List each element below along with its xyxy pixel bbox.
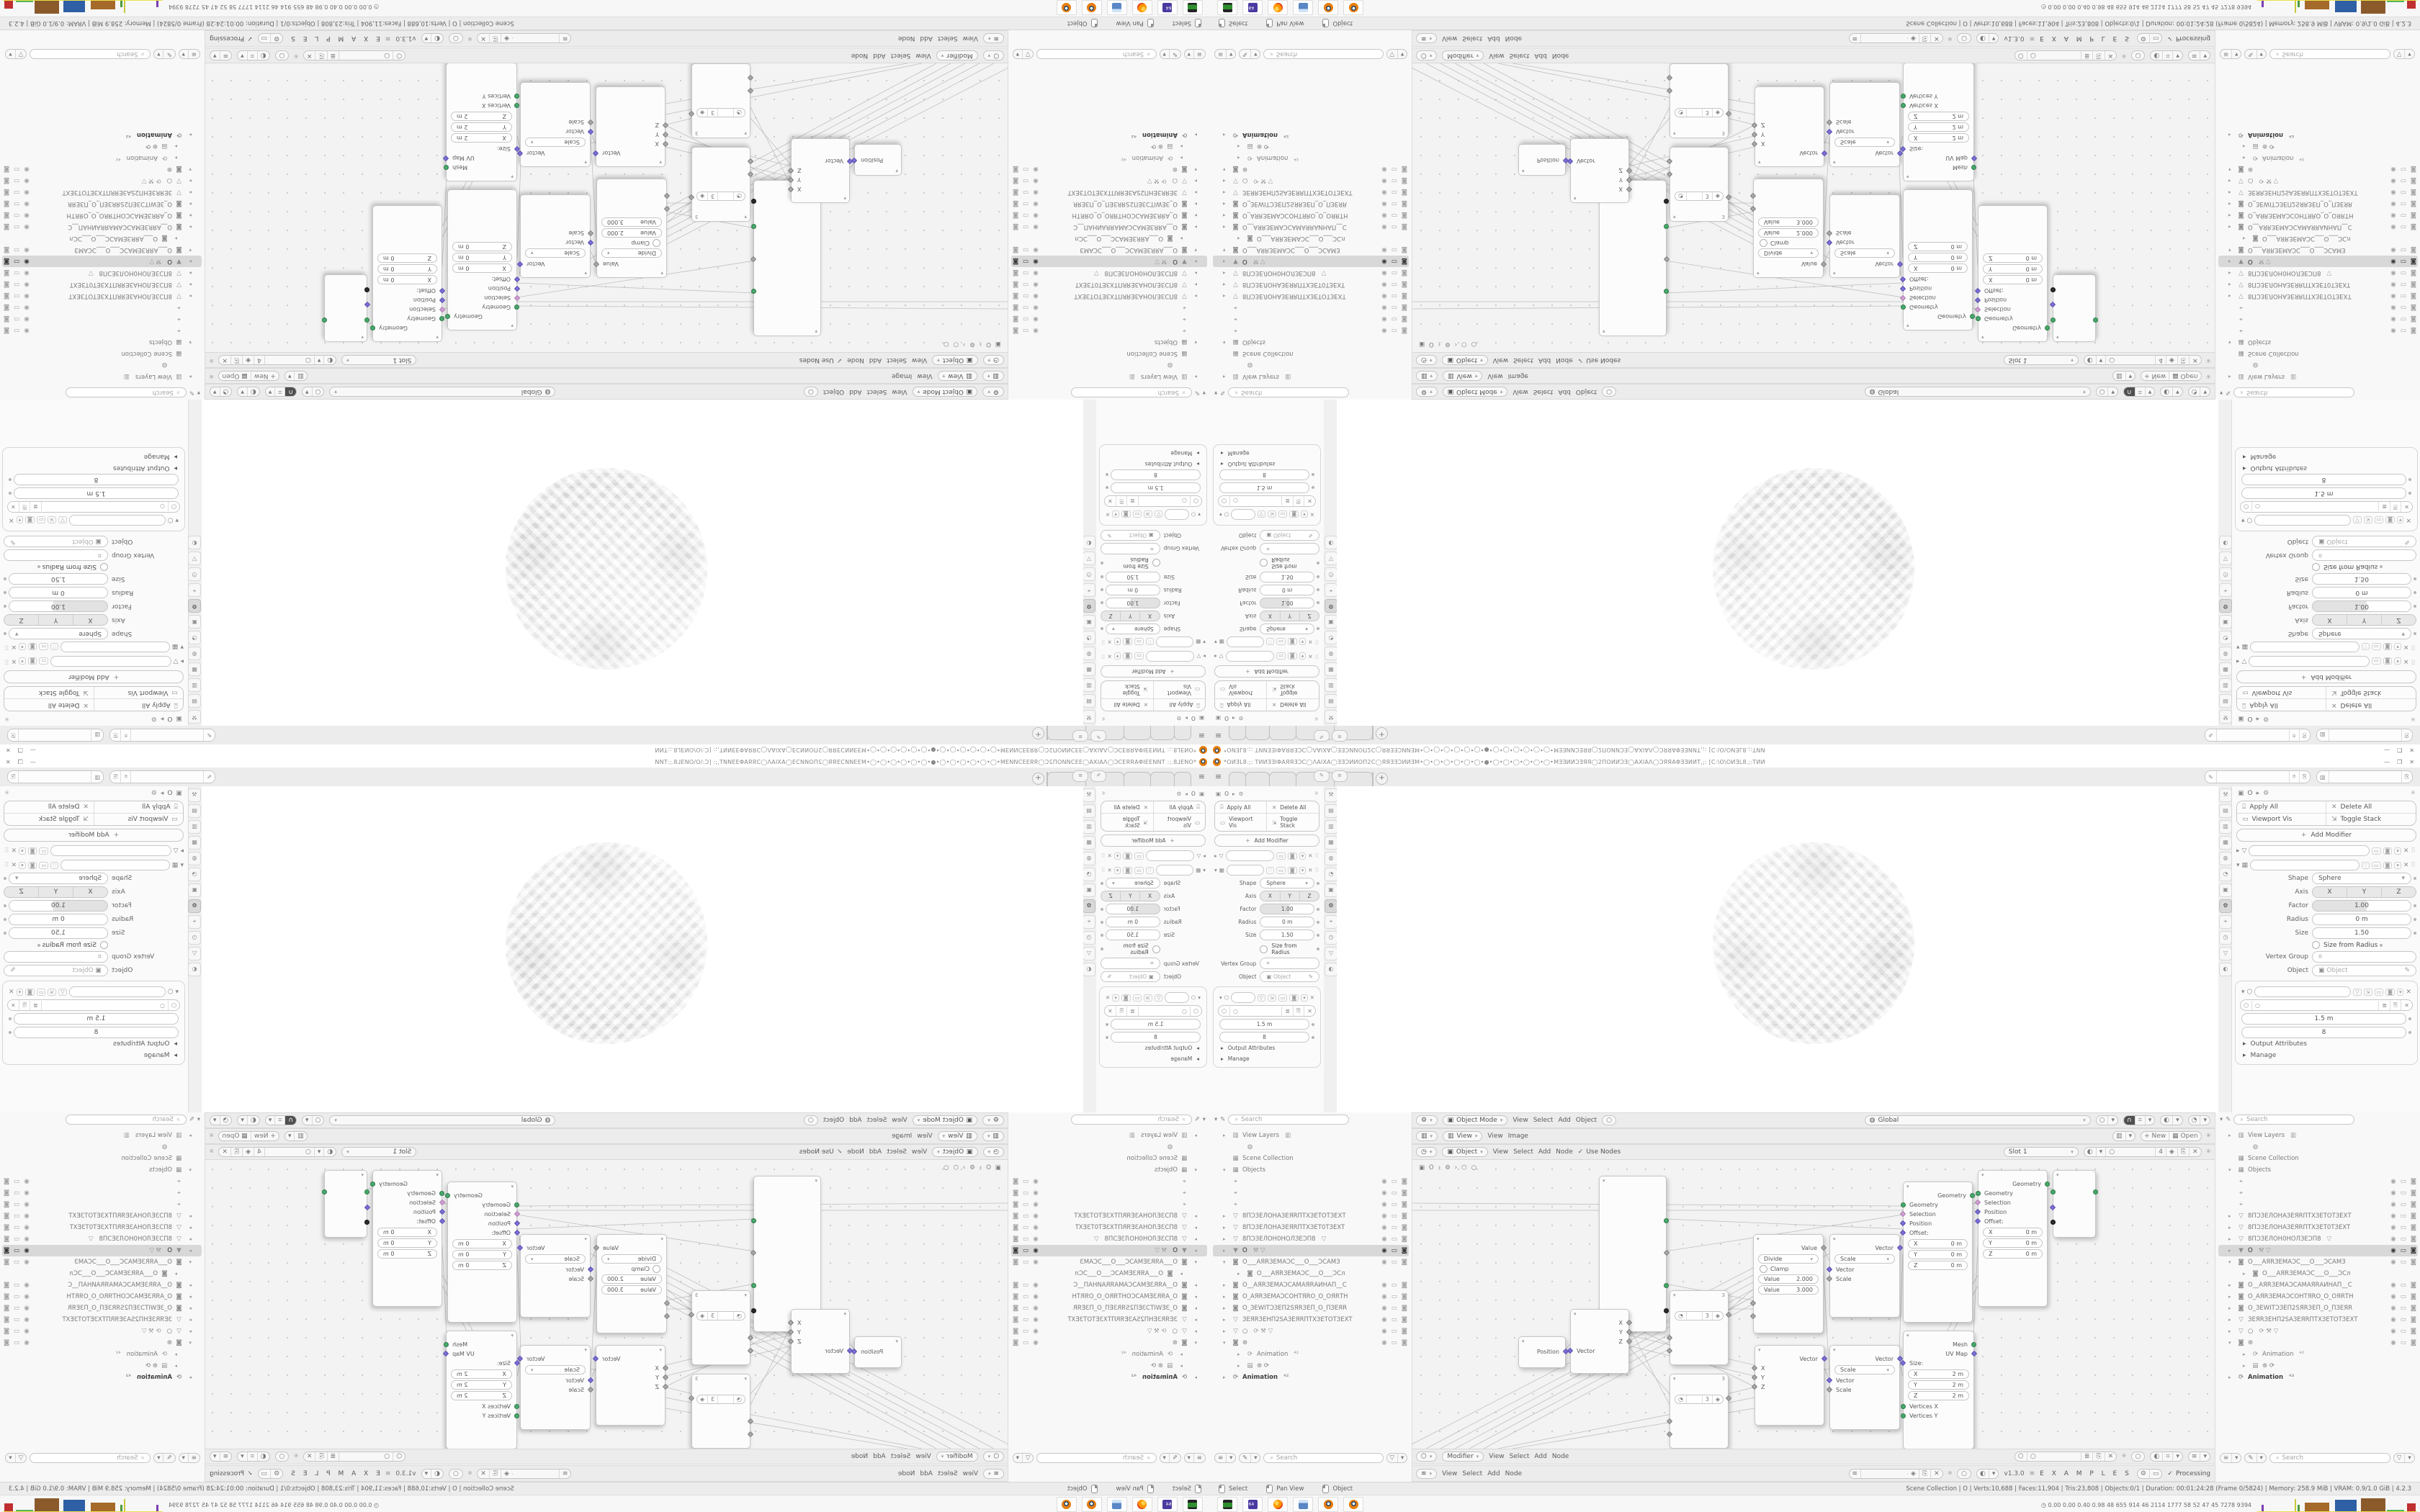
eye-toggle-icon[interactable]: ◉ — [24, 281, 29, 288]
workspace-tab[interactable] — [1124, 772, 1151, 786]
eye-toggle-icon[interactable]: ◉ — [24, 304, 29, 311]
eye-toggle-icon[interactable]: ◉ — [2390, 258, 2396, 265]
chevron-down-icon[interactable]: ▾ — [314, 356, 324, 364]
outliner-item[interactable]: ▸ ◙ O_ЗЕWІТƆЗЕП2SЯRЗЕП_О_ПЗЕЯR ◉ ▭ ◙ — [1213, 1302, 1409, 1314]
tree-selector[interactable]: ≋ ◈ ⎘ ✕ — [477, 34, 571, 44]
expand-arrow-icon[interactable]: ▸ — [1177, 155, 1183, 161]
mouse-mode-group[interactable]: ◔ ▾ — [210, 1115, 232, 1125]
screen-toggle-icon[interactable]: ▭ — [14, 1259, 19, 1266]
copy-icon[interactable]: ⎘ — [2093, 1452, 2105, 1461]
modifier-header-collapsed[interactable]: ▸ ▽ ▭ ◙ ▾ ✕ ⠿ — [4, 845, 184, 856]
camera-toggle-icon[interactable]: ◙ — [2411, 269, 2416, 276]
axis-toggle[interactable]: X Y Z — [1101, 891, 1160, 901]
node-group-name[interactable]: ○ — [1138, 1007, 1190, 1016]
object-field[interactable]: ▣ Object✎ — [4, 536, 108, 547]
output-attributes-panel[interactable]: ▸ Output Attributes — [2237, 1038, 2416, 1050]
screen-toggle-icon[interactable]: ▭ — [14, 1282, 19, 1289]
copy-icon[interactable]: ⎘ — [2390, 502, 2401, 512]
screen-toggle-icon[interactable]: ▭ — [14, 1224, 19, 1231]
image-selector[interactable]: ▥ ⎘ — [7, 770, 104, 783]
mesh-toggle-icon[interactable]: ▽ — [1266, 867, 1274, 874]
modifier-name-field[interactable] — [69, 515, 166, 526]
eye-toggle-icon[interactable]: ◉ — [24, 1236, 29, 1243]
outliner-item[interactable]: ▸ ◙ O_АЯRЗЕМАƆСОНТЯRО_О_ОЯRТН ◉ ▭ ◙ — [1213, 210, 1409, 221]
camera-toggle-icon[interactable]: ◙ — [4, 292, 9, 300]
nodes-count-field[interactable]: 8 — [14, 474, 179, 485]
outliner-item[interactable]: ▦ Scene Collection — [1011, 1153, 1207, 1164]
size-field[interactable]: 1.50 — [2312, 927, 2411, 939]
item-label[interactable]: Animation — [127, 1351, 158, 1358]
screen-toggle-icon[interactable]: ▭ — [2401, 200, 2406, 207]
snap-circle-icon[interactable]: ○ — [449, 34, 463, 44]
animate-dot[interactable] — [37, 566, 40, 569]
shield-icon[interactable]: ◈ — [1713, 1395, 1723, 1403]
properties-tab-icon[interactable]: ◍ — [1083, 852, 1095, 865]
delete-all-button[interactable]: ✕Delete All — [4, 698, 94, 711]
outliner-item[interactable]: ▾ ▦ Objects — [2218, 336, 2418, 348]
user-count[interactable]: 4 — [254, 1148, 264, 1156]
node-separate-xyz[interactable]: ▾ X Y Z Vector — [1570, 138, 1629, 203]
outliner-item[interactable]: ▸ ▽ 8ПƆЗЕЛОНАЗЕЯRПТХЗЕТОТЗЕХТ ◉ ▭ ◙ — [1213, 1210, 1409, 1222]
monitor-toggle-icon[interactable]: ▭ — [2372, 644, 2381, 651]
proportional-icon[interactable]: ◐ — [2161, 1116, 2173, 1125]
eye-toggle-icon[interactable]: ◉ — [2390, 177, 2396, 184]
outliner-item[interactable]: ▸ ▤ ⊛ ⟳ — [2218, 140, 2418, 152]
outliner-item[interactable]: ▾ ▦ Objects — [2, 1164, 202, 1176]
node-object-info[interactable]: ▾ 3 ◔ 3 ◈ — [1670, 63, 1729, 138]
outliner-item[interactable]: ▾ ◙ O___АЯRЗЕМАƆС___О___ƆСАМЗ ◉ ▭ ◙ — [1011, 244, 1207, 256]
open-image-button[interactable]: ▦ Open — [2169, 372, 2200, 380]
brush-icon[interactable]: ✎ — [163, 1454, 174, 1462]
radius-field[interactable]: 0 m — [1260, 585, 1314, 595]
geometry-output-socket[interactable] — [1664, 1283, 1669, 1288]
workspace-tab[interactable] — [1269, 772, 1296, 786]
properties-tab-icon[interactable]: ▽ — [1325, 552, 1337, 565]
copy-icon[interactable]: ⎘ — [2402, 771, 2412, 783]
expand-arrow-icon[interactable]: ▸ — [1223, 293, 1229, 299]
copy-icon[interactable]: ⎘ — [110, 771, 120, 783]
eye-toggle-icon[interactable]: ◉ — [1381, 269, 1386, 276]
dna-icon[interactable]: ≋ — [1850, 35, 1862, 43]
outliner-search[interactable]: ⌕ Search — [2233, 1115, 2354, 1125]
shape-dropdown[interactable]: Sphere▾ — [2312, 873, 2411, 884]
filter-brush-icon[interactable]: ✎ — [1220, 389, 1225, 396]
eye-toggle-icon[interactable]: ◉ — [1381, 1201, 1386, 1208]
modifier-header-expanded[interactable]: ▾ ▦ ▽ ▭ ◙ ▾ ✕ ⠿ — [4, 860, 184, 870]
item-label[interactable]: O___АЯRЗЕМАƆС___О___ƆСл — [1075, 235, 1163, 242]
shield-icon[interactable]: ◈ — [697, 109, 707, 117]
node-group-selector[interactable]: ⬡ ○ ≣ ⎘ ✕ — [7, 501, 180, 513]
screen-toggle-icon[interactable]: ▭ — [1391, 1178, 1397, 1185]
properties-tab-icon[interactable]: ▽ — [2219, 552, 2232, 565]
outliner-item[interactable]: ▸ ▽ ○ ⟳ ⚒ ▽ ◉ ▭ ◙ — [1011, 1326, 1207, 1337]
string-output-socket[interactable] — [751, 1308, 756, 1313]
node-group-selector[interactable]: ⬡ ○ ≣ ⎘ ✕ — [1218, 495, 1316, 507]
properties-tab-icon[interactable]: ▥ — [1325, 820, 1337, 834]
object-field[interactable]: ▣ Object✎ — [1260, 530, 1319, 541]
eye-toggle-icon[interactable]: ◉ — [1381, 1189, 1386, 1197]
expand-arrow-icon[interactable]: ▸ — [1237, 1271, 1243, 1277]
slot-dropdown[interactable]: Slot 1▾ — [341, 1147, 416, 1157]
add-modifier-button[interactable]: + Add Modifier — [1214, 665, 1319, 678]
outliner-item[interactable]: ▸ ◙ O___АЯRЗЕМАƆС___О___ƆСл — [2, 233, 202, 244]
screen-toggle-icon[interactable]: ▭ — [14, 1305, 19, 1312]
drag-handle-icon[interactable]: ⠿ — [2411, 644, 2416, 651]
close-button[interactable]: ✕ — [2409, 747, 2414, 754]
item-label[interactable]: O — [167, 258, 172, 265]
chevron-down-icon[interactable]: ▾ — [6, 1454, 14, 1462]
eye-toggle-icon[interactable]: ◉ — [1033, 177, 1038, 184]
item-label[interactable]: O_ЗЕWІТƆЗЕП2SЯRЗЕП_О_ПЗЕЯR — [1242, 200, 1347, 207]
expand-arrow-icon[interactable]: ▸ — [1223, 374, 1229, 379]
object-field[interactable] — [717, 1312, 733, 1320]
chevron-down-icon[interactable]: ▾ — [2173, 1452, 2182, 1461]
taskbar-app-button[interactable] — [1293, 0, 1313, 15]
brush-icon[interactable]: ✎ — [1169, 1454, 1180, 1462]
overlay-icon[interactable]: ◐ — [2151, 51, 2163, 60]
animate-dot[interactable] — [1101, 628, 1103, 631]
object-field[interactable] — [1687, 109, 1703, 117]
camera-toggle-icon[interactable]: ◙ — [2411, 1282, 2416, 1289]
properties-tab-icon[interactable]: ⚙ — [1325, 899, 1337, 913]
item-label[interactable]: ЗЕЯRЗЕНП2SАЗЕЯRПТХЗЕТОТЗЕХТ — [1067, 1316, 1178, 1323]
item-label[interactable]: Animation — [1257, 1351, 1288, 1358]
axis-toggle[interactable]: X Y Z — [1260, 891, 1319, 901]
screen-toggle-icon[interactable]: ▭ — [14, 1328, 19, 1335]
proportional-icon[interactable]: ◐ — [247, 387, 259, 396]
camera-toggle-icon[interactable]: ◙ — [4, 281, 9, 288]
image-icon[interactable]: ▥ — [2113, 1132, 2126, 1140]
menu-image[interactable]: Image — [1508, 372, 1528, 379]
eye-toggle-icon[interactable]: ◉ — [1381, 1212, 1386, 1220]
screen-toggle-icon[interactable]: ▭ — [14, 1339, 19, 1346]
expand-arrow-icon[interactable]: ▸ — [186, 258, 192, 264]
eye-toggle-icon[interactable]: ◉ — [1033, 292, 1038, 300]
expand-arrow-icon[interactable]: ▸ — [1191, 293, 1197, 299]
gear-icon[interactable]: ⚙ — [2138, 1470, 2150, 1478]
chevron-down-icon[interactable]: ▾ — [1219, 511, 1222, 518]
expand-arrow-icon[interactable]: ▸ — [2243, 1271, 2249, 1277]
taskbar-app-button[interactable] — [1107, 1497, 1127, 1512]
outliner-item[interactable]: ⌖ ◉ ▭ ◙ — [2218, 1176, 2418, 1187]
taskbar-app-button[interactable] — [1268, 0, 1288, 15]
brush-icon[interactable]: ✎ — [203, 729, 215, 741]
item-label[interactable]: O_АЯRЗЕМАƆСОНТЯRО_О_ОЯRТН — [1242, 212, 1348, 219]
taskbar-app-button[interactable] — [1268, 1497, 1288, 1512]
properties-tab-icon[interactable]: ⌖ — [188, 915, 201, 929]
item-label[interactable]: Animation — [1257, 154, 1288, 161]
count-field[interactable]: 3 — [707, 192, 717, 200]
monitor-toggle-icon[interactable]: ▭ — [2372, 847, 2381, 855]
expand-arrow-icon[interactable]: ▾ — [186, 166, 192, 172]
camera-toggle-icon[interactable]: ◙ — [1123, 639, 1132, 646]
properties-tab-icon[interactable]: ▥ — [188, 678, 201, 692]
size-field[interactable]: 1.50 — [9, 573, 108, 585]
screen-toggle-icon[interactable]: ▭ — [14, 246, 19, 253]
factor-slider[interactable]: 1.00 — [2312, 600, 2411, 612]
shield-icon[interactable]: ◈ — [1908, 1470, 1919, 1478]
value-field[interactable]: Value2.000 — [601, 1274, 662, 1284]
properties-tab-icon[interactable]: ◐ — [1325, 536, 1337, 549]
animate-dot[interactable] — [2414, 918, 2416, 921]
outliner-search[interactable]: ⌕ Search — [1037, 1453, 1157, 1463]
animate-dot[interactable] — [9, 478, 12, 481]
chevron-right-icon[interactable]: ▸ — [1214, 653, 1217, 660]
chevron-down-icon[interactable]: ▾ — [2257, 1454, 2266, 1462]
properties-tab-icon[interactable]: ▤ — [188, 804, 201, 818]
graph-icon[interactable]: ≣ — [327, 1452, 339, 1461]
axis-y-button[interactable]: Y — [2347, 615, 2382, 625]
pin-icon[interactable]: ⍟ — [120, 729, 130, 741]
drag-handle-icon[interactable]: ⠿ — [4, 847, 9, 855]
animate-dot[interactable] — [2380, 944, 2383, 947]
monitor-toggle-icon[interactable]: ▭ — [39, 658, 48, 665]
snap-target-icon[interactable]: ○ — [2097, 387, 2109, 396]
close-icon[interactable]: ✕ — [304, 51, 315, 60]
menu-select[interactable]: Select — [938, 1470, 958, 1477]
item-label[interactable]: O_АЯRЗЕМАƆСОНТЯRО_О_ОЯRТН — [2248, 212, 2354, 219]
chevron-down-icon[interactable]: ▾ — [1114, 867, 1121, 874]
animate-dot[interactable] — [1101, 948, 1103, 950]
outliner-item[interactable]: ▸ ⟳ Animation ⁴² — [2, 1372, 202, 1383]
chevron-down-icon[interactable]: ▾ — [180, 644, 184, 651]
monitor-toggle-icon[interactable]: ▭ — [37, 517, 46, 524]
outliner-item[interactable]: ▸ ▽ 8ПƆЗЕЛОНАЗЕЯRПТХЗЕТ0ТЗЕХТ ◉ ▭ ◙ — [2, 1222, 202, 1233]
filter-icon[interactable]: ▽ — [2394, 50, 2406, 58]
item-label[interactable]: O___АЯRЗЕМАƆС___О___ƆСАМЗ — [74, 1259, 172, 1266]
node-context-dropdown[interactable]: Modifier▾ — [1442, 50, 1484, 60]
camera-toggle-icon[interactable]: ◙ — [2411, 246, 2416, 253]
modifier-name-field[interactable] — [1146, 850, 1195, 861]
expand-arrow-icon[interactable]: ▸ — [1223, 270, 1229, 276]
camera-toggle-icon[interactable]: ◙ — [1013, 189, 1018, 196]
item-label[interactable]: ЗЕЯRЗЕНП2SАЗЕЯRПТХЗЕТОТЗЕХТ — [1242, 189, 1353, 196]
chevron-down-icon[interactable]: ▾ — [19, 847, 26, 855]
factor-slider[interactable]: 1.00 — [1106, 598, 1160, 608]
eye-toggle-icon[interactable]: ◉ — [1381, 315, 1386, 323]
expand-arrow-icon[interactable]: ▸ — [1223, 1133, 1229, 1138]
menu-object[interactable]: Object — [1576, 1117, 1597, 1124]
eye-toggle-icon[interactable]: ◉ — [1381, 1328, 1386, 1335]
mesh-toggle-icon[interactable]: ▽ — [2362, 862, 2370, 869]
size-from-radius-checkbox[interactable] — [100, 563, 108, 571]
chevron-down-icon[interactable]: ▾ — [2126, 1132, 2136, 1140]
chevron-down-icon[interactable]: ▾ — [17, 517, 24, 524]
chevron-down-icon[interactable]: ▾ — [2126, 372, 2136, 380]
axis-toggle[interactable]: X Y Z — [4, 886, 108, 898]
monitor-toggle-icon[interactable]: ▭ — [1133, 994, 1142, 1002]
item-label[interactable]: ○ — [2248, 1328, 2253, 1335]
monitor-toggle-icon[interactable]: ▭ — [2372, 862, 2381, 869]
node-output-blank[interactable]: ▾ — [2053, 1170, 2096, 1238]
eye-toggle-icon[interactable]: ◉ — [1033, 1259, 1038, 1266]
expand-arrow-icon[interactable]: ▸ — [1191, 1236, 1197, 1242]
slider-icon[interactable]: ≡ — [2189, 1452, 2201, 1461]
camera-toggle-icon[interactable]: ◙ — [1402, 1201, 1407, 1208]
screen-toggle-icon[interactable]: ▭ — [2401, 1201, 2406, 1208]
camera-toggle-icon[interactable]: ◙ — [1013, 1282, 1018, 1289]
item-label[interactable]: O___АЯRЗЕМАƆС___О___ƆСл — [1257, 235, 1345, 242]
modifier-name-field[interactable] — [50, 656, 171, 667]
menu-add[interactable]: Add — [869, 356, 882, 364]
properties-tab-icon[interactable]: ▤ — [188, 694, 201, 708]
chevron-down-icon[interactable]: ▾ — [1114, 653, 1121, 660]
eye-toggle-icon[interactable]: ◉ — [2390, 1224, 2396, 1231]
outliner-item[interactable]: ⌖ ◉ ▭ ◙ — [1011, 313, 1207, 325]
eye-toggle-icon[interactable]: ◉ — [1381, 166, 1386, 173]
minimize-button[interactable]: — — [2384, 747, 2390, 754]
vector-operation-dropdown[interactable]: Scale▾ — [1834, 248, 1895, 258]
expand-arrow-icon[interactable]: ▾ — [1191, 1259, 1197, 1265]
camera-toggle-icon[interactable]: ◙ — [1402, 200, 1407, 207]
expand-arrow-icon[interactable]: ▸ — [2228, 1328, 2234, 1334]
close-icon[interactable]: ✕ — [2401, 1001, 2412, 1010]
item-label[interactable]: ⊛ — [2248, 1339, 2253, 1346]
edit-toggle-icon[interactable]: ⇲ — [2364, 989, 2372, 996]
drag-handle-icon[interactable]: ⠿ — [1315, 867, 1320, 873]
screen-toggle-icon[interactable]: ▭ — [2401, 292, 2406, 300]
node-object-info[interactable]: ▾ 3 ◔ 3 ◈ — [691, 1290, 750, 1365]
eye-toggle-icon[interactable]: ◉ — [1033, 1189, 1038, 1197]
eye-toggle-icon[interactable]: ◉ — [1381, 246, 1386, 253]
item-label[interactable]: O___АЯRЗЕМАƆС___О___ƆСл — [1257, 1270, 1345, 1277]
eye-toggle-icon[interactable]: ◉ — [24, 1316, 29, 1323]
nodetree-icon[interactable]: ⬡ — [1461, 341, 1466, 348]
outliner-item[interactable]: ▸ ▽ 8ПƆЗЕЛОНАЗЕЯRПТХЗЕТ0ТЗЕХТ ◉ ▭ ◙ — [1213, 1222, 1409, 1233]
menu-node[interactable]: Node — [898, 35, 915, 42]
geometry-output-socket[interactable] — [1664, 224, 1669, 229]
drag-handle-icon[interactable]: ⠿ — [4, 862, 9, 869]
drag-handle-icon[interactable]: ⠿ — [1315, 852, 1320, 859]
pin-icon[interactable]: ⍟ — [1948, 35, 1952, 42]
outliner-item[interactable]: ▸ ◙ O___АЯRЗЕМАƆС___О___ƆСл — [1011, 233, 1207, 244]
camera-toggle-icon[interactable]: ◙ — [4, 212, 9, 219]
camera-toggle-icon[interactable]: ◙ — [1402, 292, 1407, 300]
overlay-icon[interactable]: ◐ — [1977, 35, 1989, 43]
eye-toggle-icon[interactable]: ◉ — [1033, 1328, 1038, 1335]
expand-arrow-icon[interactable]: ▾ — [2228, 247, 2234, 253]
expand-arrow-icon[interactable]: ▸ — [2228, 374, 2234, 379]
close-icon[interactable]: ✕ — [12, 644, 17, 651]
close-icon[interactable]: ✕ — [1310, 994, 1314, 1001]
expand-arrow-icon[interactable]: ▸ — [186, 1374, 192, 1380]
close-button[interactable]: ✕ — [6, 747, 11, 754]
outliner-item[interactable]: ▾ ▦ Objects — [1213, 1164, 1409, 1176]
menu-add[interactable]: Add — [1487, 1470, 1500, 1477]
nodetree-icon[interactable]: ⬡ — [1190, 497, 1201, 506]
outliner-item[interactable]: ⌖ ◉ ▭ ◙ — [1213, 302, 1409, 313]
outliner-item[interactable]: ⌖ ◉ ▭ ◙ — [1011, 1199, 1207, 1210]
outliner-item[interactable]: ▸ ▽ 8ПƆЗЕЛОНАЗЕЯRПТХЗЕТОТЗЕХТ ◉ ▭ ◙ — [1011, 1210, 1207, 1222]
camera-toggle-icon[interactable]: ◙ — [4, 315, 9, 323]
expand-arrow-icon[interactable]: ▸ — [2228, 201, 2234, 207]
menu-select[interactable]: Select — [1510, 52, 1530, 59]
expand-arrow-icon[interactable]: ▸ — [1191, 201, 1197, 207]
item-label[interactable]: 8ПƆЗЕЛОНАЗЕЯRПТХЗЕТ0ТЗЕХТ — [70, 281, 172, 288]
image-name-field[interactable] — [2329, 771, 2402, 783]
item-label[interactable]: O — [2248, 258, 2253, 265]
menu-add[interactable]: Add — [1538, 356, 1551, 364]
new-image-button[interactable]: + New — [2141, 1132, 2169, 1140]
breadcrumb-object-name[interactable]: O — [1191, 716, 1196, 722]
animate-dot[interactable] — [4, 918, 6, 921]
transform-orientation-dropdown[interactable]: ◍Global▾ — [1865, 387, 2091, 397]
properties-tab-icon[interactable]: ◔ — [1325, 631, 1337, 644]
screen-toggle-icon[interactable]: ▭ — [1391, 1247, 1397, 1254]
menu-select[interactable]: Select — [1462, 35, 1482, 42]
outliner-item[interactable]: ▸ ◙ O___АЯRЗЕМАƆС___О___ƆСл — [1213, 1268, 1409, 1279]
slider-group[interactable]: ≡ ▾ — [2188, 1452, 2210, 1462]
expand-arrow-icon[interactable]: ▾ — [1191, 166, 1197, 172]
chevron-down-icon[interactable]: ▾ — [180, 862, 184, 869]
eye-toggle-icon[interactable]: ◉ — [2390, 315, 2396, 323]
outliner-item[interactable]: ▸ ▼ O ⚒ ▽ ◉ ▭ ◙ — [1213, 1245, 1409, 1256]
modifier-name-field[interactable] — [1156, 865, 1193, 876]
copy-icon[interactable]: ⎘ — [2390, 1000, 2401, 1010]
outliner-item[interactable]: ▾ ◙ ⊛ ◉ ▭ ◙ — [1213, 1337, 1409, 1349]
modifier-header-expanded[interactable]: ▾ ▦ ▽ ▭ ◙ ▾ ✕ ⠿ — [2236, 860, 2416, 870]
close-icon[interactable]: ✕ — [1304, 1007, 1315, 1016]
radius-field[interactable]: 0 m — [2312, 914, 2411, 925]
pin-icon[interactable]: ⍟ — [2122, 1453, 2125, 1460]
properties-tab-icon[interactable]: ▥ — [188, 820, 201, 834]
shield-icon[interactable]: ◈ — [2166, 1148, 2178, 1156]
size-from-radius-checkbox[interactable] — [1260, 945, 1268, 953]
use-nodes-checkbox[interactable]: ✓Use Nodes — [799, 1148, 842, 1156]
pin-icon[interactable]: ⍟ — [294, 52, 297, 59]
outliner-item[interactable]: ▸ ▽ 8ПƆЗЕЛОН0НОЛЗЕƆП8 ▽ ◉ ▭ ◙ — [1213, 267, 1409, 279]
outliner-item[interactable]: ▸ ▽ 8ПƆЗЕЛОНАЗЕЯRПТХЗЕТ0ТЗЕХТ ◉ ▭ ◙ — [1011, 279, 1207, 290]
properties-tab-icon[interactable]: ⚒ — [188, 710, 201, 724]
modifier-icon[interactable]: ⚙ — [969, 1164, 975, 1171]
screen-toggle-icon[interactable]: ▭ — [2401, 246, 2406, 253]
screen-toggle-icon[interactable]: ▭ — [1023, 1247, 1028, 1254]
nodetree-icon[interactable]: ⬡ — [2241, 503, 2252, 512]
lasso-icon[interactable]: ○ — [804, 1115, 818, 1125]
factor-slider[interactable]: 1.00 — [9, 600, 108, 612]
menu-node[interactable]: Node — [847, 1148, 864, 1156]
apply-all-button[interactable]: ⍗Apply All — [1153, 801, 1205, 814]
outliner-item[interactable]: ▸ ▽ 8ПƆЗЕЛОН0НОЛЗЕƆП8 ▽ ◉ ▭ ◙ — [2, 267, 202, 279]
eye-toggle-icon[interactable]: ◉ — [1033, 1236, 1038, 1243]
copy-icon[interactable]: ⎘ — [2300, 771, 2310, 783]
image-icon[interactable]: ▥ — [294, 372, 307, 380]
properties-tab-icon[interactable]: ⌖ — [2219, 583, 2232, 597]
toggle-stack-button[interactable]: ⇲Toggle Stack — [1101, 814, 1153, 831]
properties-tab-icon[interactable]: ◐ — [188, 536, 201, 549]
modifier-name-field[interactable] — [60, 642, 169, 652]
camera-toggle-icon[interactable]: ◙ — [1402, 1339, 1407, 1346]
menu-view[interactable]: View — [915, 52, 931, 59]
modifier-header-expanded[interactable]: ▾ ▦ ▽ ▭ ◙ ▾ ✕ ⠿ — [1214, 865, 1319, 876]
properties-tab-icon[interactable]: ▦ — [1325, 662, 1337, 676]
texture-icon[interactable]: ◐ — [2084, 1148, 2097, 1156]
item-label[interactable]: O___АЯRЗЕМАƆС___О___ƆСАМЗ — [1242, 1259, 1340, 1266]
filter-brush-icon[interactable]: ✎ — [1220, 1116, 1225, 1123]
factor-slider[interactable]: 1.00 — [2312, 900, 2411, 912]
workspace-tab[interactable] — [1150, 772, 1175, 786]
count-field[interactable]: 3 — [707, 1395, 717, 1403]
filter-mode-dropdown[interactable]: ✎ ▾ — [1239, 49, 1260, 59]
node-set-position[interactable]: ▾ Geometry Geometry Selection Position O… — [1978, 1170, 2048, 1307]
expand-arrow-icon[interactable]: ▸ — [2228, 1236, 2234, 1242]
outliner-item[interactable]: ▸ ▤ ⊛ ⟳ — [1011, 1360, 1207, 1372]
expand-arrow-icon[interactable]: ▸ — [2228, 1294, 2234, 1300]
properties-tab-icon[interactable]: ▥ — [1083, 820, 1095, 834]
outliner-item[interactable]: ▸ ⟳ Animation ⁴² — [2, 1349, 202, 1360]
menu-dropdown-icon[interactable]: ≡ — [1332, 770, 1348, 782]
vector-operation-dropdown[interactable]: Scale▾ — [1834, 138, 1895, 147]
